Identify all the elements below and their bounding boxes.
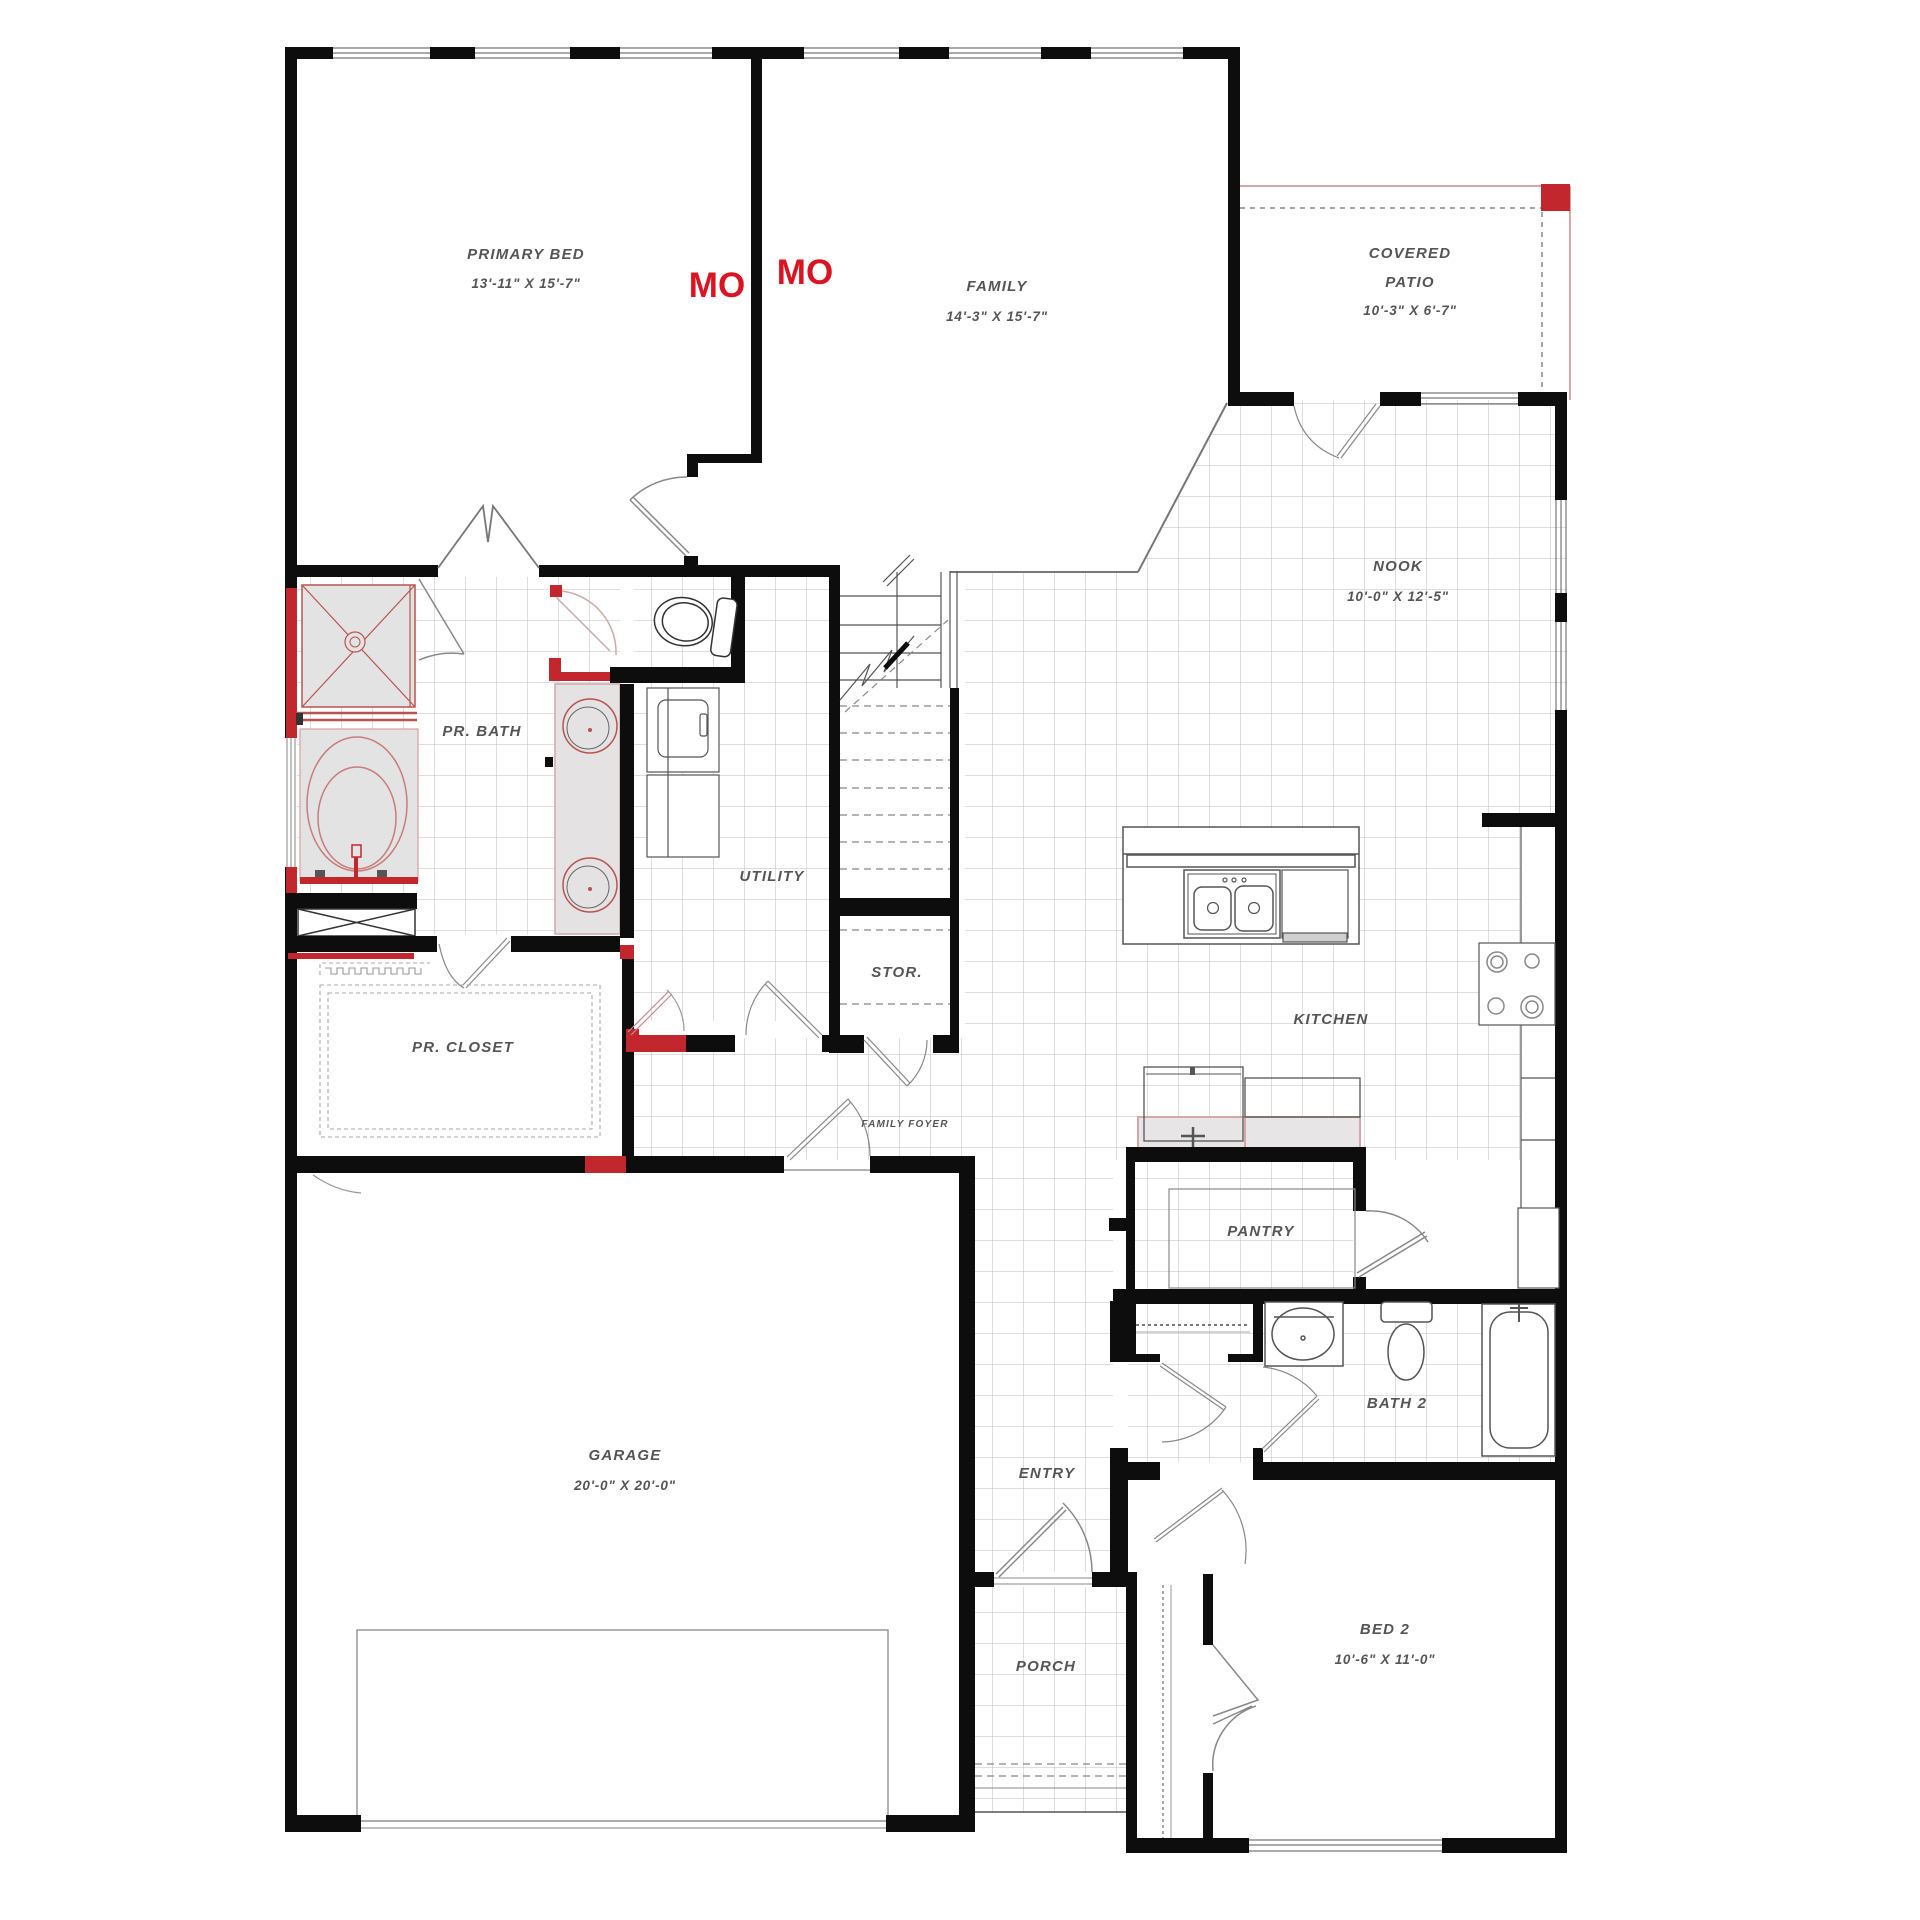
svg-text:10'-6" X 11'-0": 10'-6" X 11'-0" xyxy=(1335,1652,1436,1667)
svg-text:NOOK: NOOK xyxy=(1373,558,1423,575)
svg-text:10'-0" X 12'-5": 10'-0" X 12'-5" xyxy=(1347,589,1449,604)
svg-text:KITCHEN: KITCHEN xyxy=(1293,1011,1368,1028)
svg-text:13'-11" X 15'-7": 13'-11" X 15'-7" xyxy=(471,276,580,291)
svg-text:UTILITY: UTILITY xyxy=(739,868,805,885)
svg-text:20'-0" X 20'-0": 20'-0" X 20'-0" xyxy=(573,1478,676,1493)
svg-text:14'-3" X 15'-7": 14'-3" X 15'-7" xyxy=(946,309,1048,324)
svg-text:BATH 2: BATH 2 xyxy=(1367,1395,1427,1412)
svg-text:PORCH: PORCH xyxy=(1016,1658,1076,1675)
svg-text:10'-3" X 6'-7": 10'-3" X 6'-7" xyxy=(1363,303,1456,318)
svg-text:BED 2: BED 2 xyxy=(1360,1621,1410,1638)
svg-text:PATIO: PATIO xyxy=(1385,274,1435,291)
svg-text:FAMILY FOYER: FAMILY FOYER xyxy=(861,1119,948,1130)
svg-text:PR. BATH: PR. BATH xyxy=(442,723,521,740)
svg-text:FAMILY: FAMILY xyxy=(966,278,1028,295)
svg-text:COVERED: COVERED xyxy=(1369,245,1452,262)
svg-text:GARAGE: GARAGE xyxy=(588,1447,661,1464)
svg-text:PRIMARY BED: PRIMARY BED xyxy=(467,246,585,263)
svg-text:ENTRY: ENTRY xyxy=(1019,1465,1076,1482)
svg-text:STOR.: STOR. xyxy=(871,964,923,981)
svg-text:MO: MO xyxy=(689,266,745,305)
svg-text:PR. CLOSET: PR. CLOSET xyxy=(412,1039,515,1056)
svg-text:MO: MO xyxy=(777,253,833,292)
svg-text:PANTRY: PANTRY xyxy=(1227,1223,1295,1240)
